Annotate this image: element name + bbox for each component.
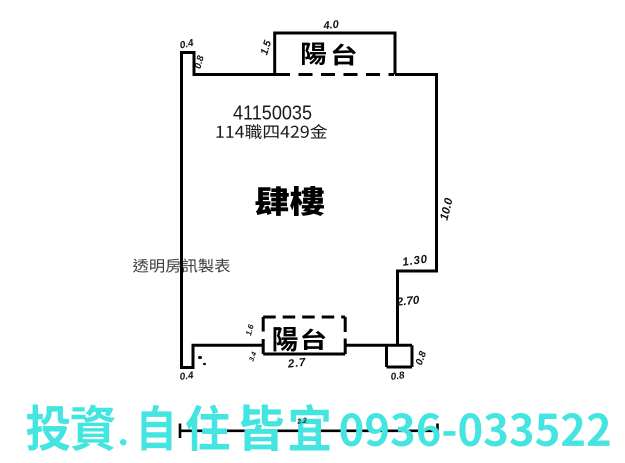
svg-text:0.4: 0.4 [179, 370, 195, 383]
svg-text:0.8: 0.8 [390, 370, 406, 383]
svg-text:41150035: 41150035 [233, 102, 312, 124]
svg-text:2.70: 2.70 [395, 294, 420, 308]
svg-text:4.0: 4.0 [322, 19, 340, 33]
svg-text:2.7: 2.7 [286, 357, 307, 371]
